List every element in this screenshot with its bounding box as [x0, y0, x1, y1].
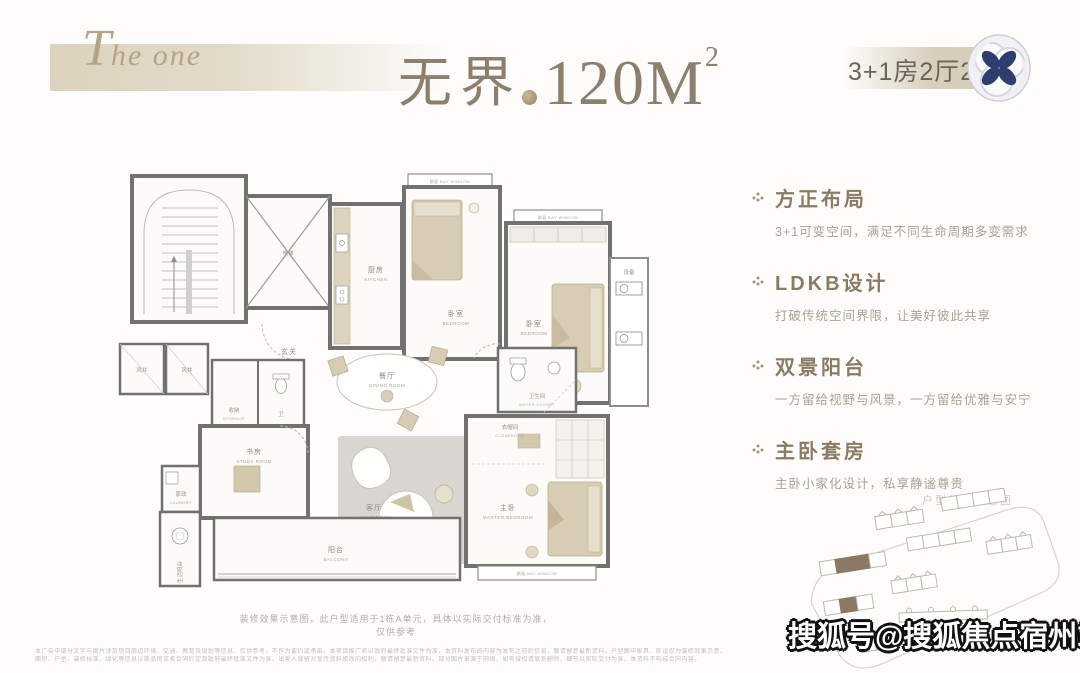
plan-caption: 装修效果示意图，此户型适用于1栋A单元，具体以实际交付标准为准，仅供参考 — [236, 612, 556, 638]
bathroom: 卫生间 WATER CLOSET — [498, 348, 576, 412]
feature-title-text: 主卧套房 — [775, 435, 867, 464]
feature-list: 方正布局 3+1可变空间，满足不同生命周期多变需求 LDKB设计 打破传统空间界… — [752, 183, 1067, 492]
diamond-bullet-icon — [752, 444, 764, 456]
svg-text:MASTER BEDROOM: MASTER BEDROOM — [483, 515, 533, 520]
svg-text:风井: 风井 — [136, 366, 148, 374]
kitchen: 厨房 KITCHEN — [330, 204, 402, 348]
feature-item: 主卧套房 主卧小家化设计，私享静谧尊贵 — [752, 435, 1067, 492]
room-label-kitchen: 厨房 — [368, 265, 384, 274]
feature-title: 主卧套房 — [752, 435, 1067, 464]
room-label-elevator: 电梯 — [282, 249, 294, 257]
dining-room: 餐厅 DINING ROOM — [328, 346, 448, 431]
page: The one 无界 120M2 3+1房2厅2卫 方正布局 3+1可变空间，满… — [0, 0, 1080, 673]
svg-text:KITCHEN: KITCHEN — [364, 277, 387, 282]
title-cn: 无界 — [398, 51, 522, 115]
room-label-bedroom2: 卧室 — [526, 319, 542, 328]
feature-item: 双景阳台 一方留给视野与风景，一方留给优雅与安宁 — [752, 351, 1067, 408]
room-label-bedroom1: 卧室 — [448, 309, 464, 318]
svg-text:飘窗 BAY WINDOW: 飘窗 BAY WINDOW — [517, 570, 558, 576]
room-label-equipment: 设备 — [623, 268, 635, 276]
svg-text:BEDROOM: BEDROOM — [521, 331, 548, 336]
room-label-laundry: 家政 — [175, 490, 187, 498]
feature-item: LDKB设计 打破传统空间界限，让美好彼此共享 — [752, 267, 1067, 324]
room-label-anteroom: 玄关 — [281, 347, 297, 356]
site-building — [890, 570, 937, 594]
balcony: 阳台 BALCONY — [214, 518, 460, 580]
title-area: 120M2 — [544, 26, 719, 115]
disclaimer-line-2: 面积、户型、装修标准、绿化等信息以商品房买卖合同约定及政府最终批准文件为准。出卖… — [35, 656, 750, 664]
svg-text:CLOAKROOM: CLOAKROOM — [495, 433, 525, 438]
site-building — [873, 488, 1007, 529]
feature-title-text: 方正布局 — [775, 183, 867, 212]
floor-plan: 电梯 玄关 ANTEROOM 厨房 KITCHEN 飘窗 BAY WINDOW — [104, 164, 660, 640]
wind-shafts: 风井 风井 — [120, 344, 208, 394]
brand-logo-text: The one — [82, 34, 202, 73]
feature-item: 方正布局 3+1可变空间，满足不同生命周期多变需求 — [752, 183, 1067, 240]
feature-desc: 3+1可变空间，满足不同生命周期多变需求 — [775, 221, 1067, 240]
svg-text:飘窗 BAY WINDOW: 飘窗 BAY WINDOW — [538, 214, 579, 220]
stairwell — [132, 176, 246, 322]
svg-text:DINING ROOM: DINING ROOM — [369, 383, 406, 388]
room-label-study: 书房 — [246, 447, 262, 456]
site-building — [906, 528, 971, 551]
diamond-bullet-icon — [752, 276, 764, 288]
bedroom-1: 飘窗 BAY WINDOW 卧室 BEDROOM — [404, 174, 500, 359]
feature-title: LDKB设计 — [752, 267, 1067, 296]
room-label-cloak: 衣帽间 — [502, 423, 519, 431]
disclaimer-line-1: 本广告中部分文字与图片涉及项目周边环境、交通、教育及规划等信息，仅供参考，不作为… — [35, 648, 750, 656]
study-room: 书房 STUDY ROOM — [200, 426, 308, 518]
brand-initial: T — [82, 20, 111, 77]
svg-text:BALCONY: BALCONY — [323, 557, 348, 562]
laundry: 家政 LAUNDRY — [162, 466, 200, 512]
svg-text:WATER CLOSET: WATER CLOSET — [519, 402, 555, 407]
feature-title-text: LDKB设计 — [775, 267, 889, 296]
room-label-wc: 卫生间 — [529, 392, 546, 400]
svg-text:LAUNDRY: LAUNDRY — [170, 500, 192, 505]
room-label-bath-small: 卫 — [278, 411, 284, 418]
room-label-balcony: 阳台 — [328, 545, 344, 554]
page-title: 无界 120M2 — [398, 26, 719, 115]
title-area-sup: 2 — [705, 42, 719, 73]
feature-title: 双景阳台 — [752, 351, 1067, 380]
master-bedroom: 衣帽间 CLOAKROOM 主卧 MASTER BEDROOM 飘窗 BAY W… — [466, 416, 608, 580]
svg-text:STUDY ROOM: STUDY ROOM — [236, 459, 271, 464]
feature-title-text: 双景阳台 — [775, 351, 867, 380]
seal-medallion-icon — [522, 90, 537, 105]
feature-desc: 打破传统空间界限，让美好彼此共享 — [775, 305, 1067, 324]
room-label-dining: 餐厅 — [379, 371, 395, 380]
brand-rest: he one — [111, 39, 202, 72]
feature-desc: 一方留给视野与风景，一方留给优雅与安宁 — [775, 389, 1067, 408]
site-building-highlighted — [819, 552, 886, 576]
svg-text:风井: 风井 — [181, 366, 193, 374]
rose-knot-logo-icon — [962, 29, 1036, 107]
svg-text:BEDROOM: BEDROOM — [443, 321, 470, 326]
service-balcony: 生活阳台 — [160, 512, 200, 586]
elevator: 电梯 — [246, 196, 330, 308]
anteroom: 玄关 ANTEROOM — [262, 324, 304, 364]
diamond-bullet-icon — [752, 192, 764, 204]
equipment-platform: 设备 — [610, 258, 648, 406]
svg-text:飘窗 BAY WINDOW: 飘窗 BAY WINDOW — [430, 178, 471, 184]
svg-text:STORAGE: STORAGE — [223, 416, 245, 421]
diamond-bullet-icon — [752, 360, 764, 372]
watermark: 搜狐号@搜狐焦点宿州站 — [788, 613, 1080, 655]
room-label-storage: 收纳 — [228, 406, 240, 414]
room-label-service-balcony: 生活阳台 — [176, 561, 184, 584]
room-label-living: 客厅 — [366, 503, 382, 512]
site-building — [985, 531, 1032, 555]
feature-title: 方正布局 — [752, 183, 1067, 212]
room-label-master: 主卧 — [500, 503, 516, 512]
